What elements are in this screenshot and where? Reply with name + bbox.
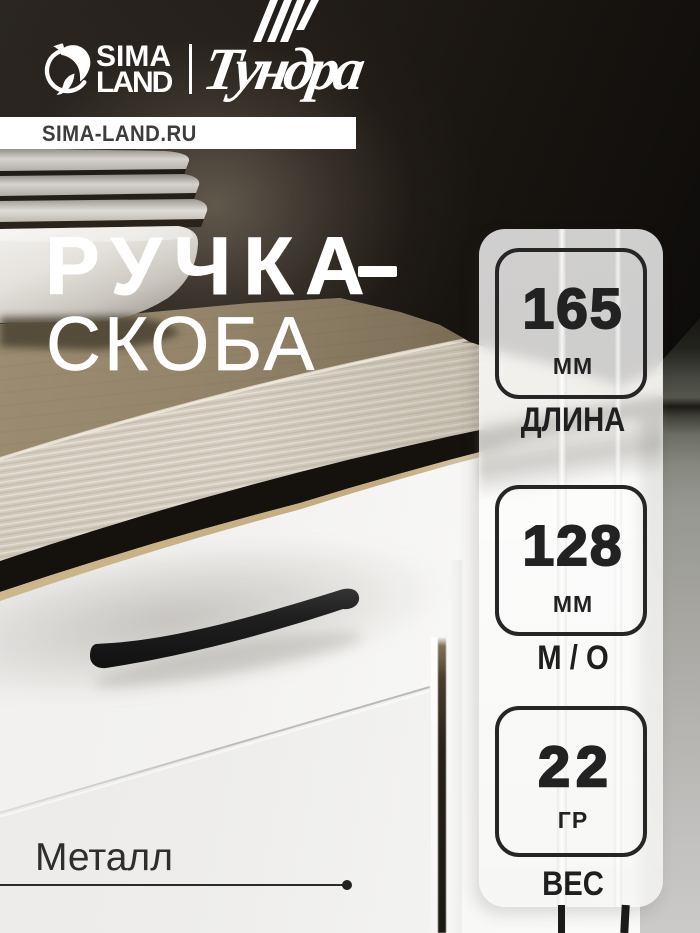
svg-text:Тундра: Тундра: [199, 36, 371, 102]
